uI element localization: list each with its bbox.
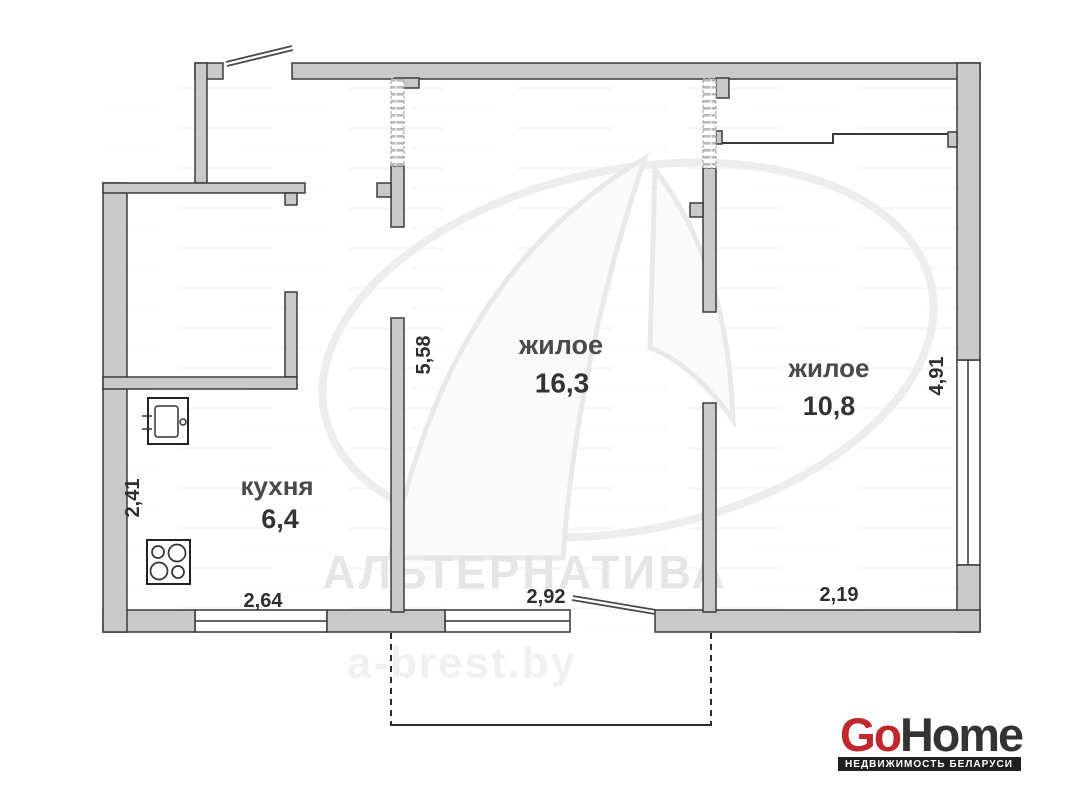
floor-plan-page: АЛЬТЕРНАТИВА a-brest.by (0, 0, 1068, 800)
wall-bathroom-bottom (103, 377, 297, 389)
kitchen-area: 6,4 (261, 504, 299, 534)
living-main-area: 16,3 (535, 368, 590, 399)
dim-living-second-depth: 4,91 (926, 357, 948, 396)
wall-between-rooms-upper (703, 168, 716, 312)
wall-hall-living-upper (391, 166, 404, 227)
watermark-agency-text: АЛЬТЕРНАТИВА (323, 546, 728, 599)
dim-living-second-width: 2,19 (820, 584, 859, 606)
closet-jamb-left (716, 131, 722, 144)
gohome-logo-go: Go (840, 708, 900, 761)
door-jamb-hall (377, 183, 391, 197)
living-second-area: 10,8 (803, 391, 856, 421)
wall-bottom-right (655, 610, 980, 632)
dim-living-main-depth: 5,58 (413, 336, 435, 375)
gohome-logo-home: Home (900, 708, 1023, 761)
gohome-tagline-text: НЕДВИЖИМОСТЬ БЕЛАРУСИ (845, 759, 1013, 770)
wall-left-outer (103, 183, 127, 632)
dim-kitchen-depth: 2,41 (122, 479, 144, 518)
closet-jamb-right (948, 132, 957, 147)
wall-right-upper (957, 63, 980, 360)
wall-top-main (292, 63, 980, 79)
entry-door-leaf (226, 46, 292, 62)
wall-bathroom-door-jamb (285, 193, 297, 205)
door-jamb-living-main (690, 203, 703, 217)
wall-bathroom-right (285, 292, 297, 377)
dim-kitchen-window-width: 2,64 (244, 590, 284, 612)
kitchen-label: кухня (240, 471, 313, 501)
living-main-label: жилое (518, 330, 603, 360)
wall-bottom-middle (327, 610, 445, 632)
wall-bathroom-top (103, 183, 305, 193)
living-second-label: жилое (788, 353, 870, 383)
floor-plan: АЛЬТЕРНАТИВА a-brest.by (0, 0, 1068, 800)
gohome-logo: Go Home НЕДВИЖИМОСТЬ БЕЛАРУСИ (838, 708, 1023, 771)
dim-balcony-exit-width: 2,92 (527, 586, 566, 608)
wall-between-rooms-lower (703, 403, 716, 612)
wall-step-shaft-right (716, 78, 729, 98)
watermark-website-text: a-brest.by (347, 639, 577, 688)
wall-hall-living-lower (391, 318, 404, 612)
kitchen-stove-icon (147, 540, 190, 584)
wall-entry-side (195, 63, 207, 183)
vent-shaft-right (703, 79, 716, 168)
vent-shaft-left (391, 79, 404, 166)
kitchen-sink-icon (142, 398, 188, 444)
entry-door-leaf-inner (227, 50, 293, 66)
